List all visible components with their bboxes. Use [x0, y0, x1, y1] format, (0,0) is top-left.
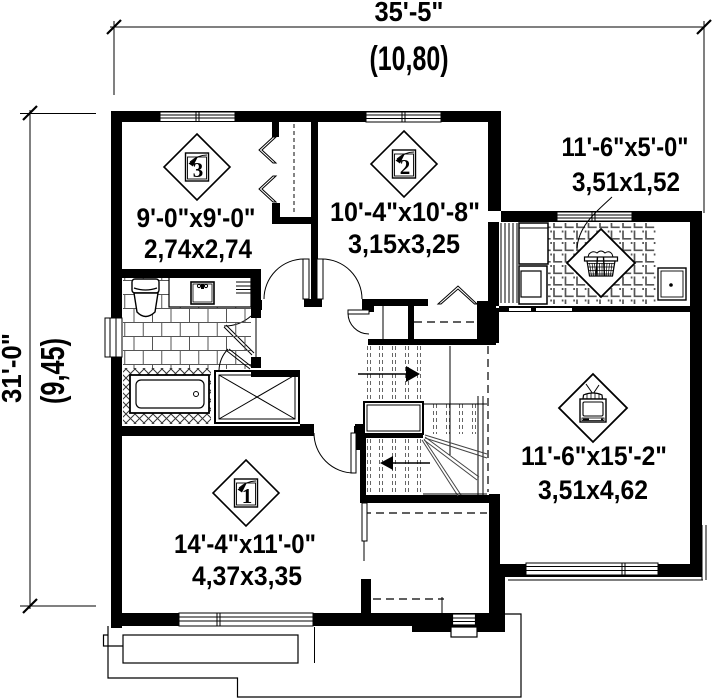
- svg-text:2,74x2,74: 2,74x2,74: [144, 234, 252, 264]
- svg-text:2: 2: [400, 155, 411, 179]
- svg-text:31'-0": 31'-0": [0, 333, 27, 403]
- svg-text:3,15x3,25: 3,15x3,25: [348, 229, 460, 259]
- svg-text:14'-4"x11'-0": 14'-4"x11'-0": [174, 529, 316, 559]
- svg-text:3,51x1,52: 3,51x1,52: [572, 167, 680, 197]
- svg-text:(9,45): (9,45): [34, 338, 71, 404]
- svg-text:1: 1: [242, 484, 253, 508]
- svg-text:10'-4"x10'-8": 10'-4"x10'-8": [330, 197, 480, 227]
- svg-text:3: 3: [193, 158, 204, 182]
- svg-text:11'-6"x15'-2": 11'-6"x15'-2": [521, 441, 667, 471]
- svg-text:(10,80): (10,80): [370, 40, 449, 78]
- svg-text:11'-6"x5'-0": 11'-6"x5'-0": [562, 132, 689, 162]
- svg-text:4,37x3,35: 4,37x3,35: [192, 561, 302, 591]
- svg-text:3,51x4,62: 3,51x4,62: [538, 475, 648, 505]
- svg-text:9'-0"x9'-0": 9'-0"x9'-0": [137, 203, 256, 233]
- svg-text:35'-5": 35'-5": [375, 0, 444, 27]
